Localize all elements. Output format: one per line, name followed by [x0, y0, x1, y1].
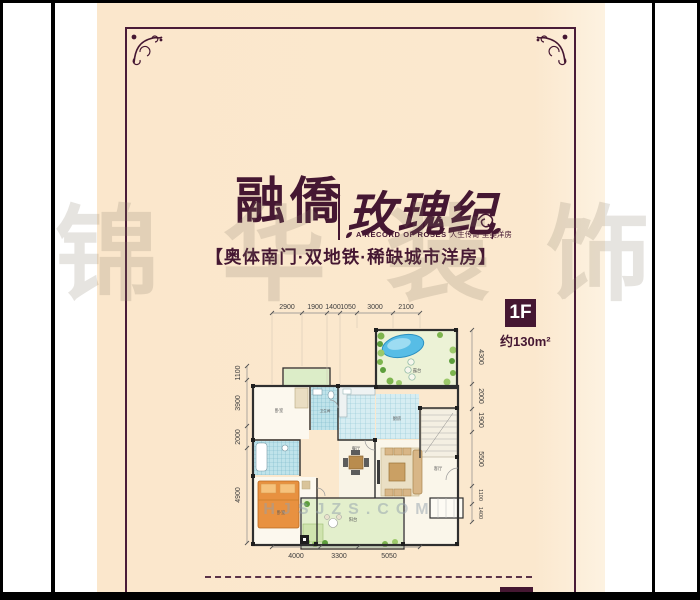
svg-text:厨房: 厨房 — [393, 415, 402, 422]
title-divider — [338, 184, 340, 232]
floor-area: 约130m² — [500, 331, 551, 350]
corner-flourish-icon — [130, 32, 164, 66]
subtitle-en: A RECORD OF ROSES — [356, 230, 447, 239]
svg-text:1900: 1900 — [307, 304, 323, 311]
subtitle-cn: 人生传奇 至美洋房 — [450, 229, 512, 240]
svg-text:2100: 2100 — [398, 304, 414, 311]
svg-text:1900: 1900 — [477, 412, 484, 428]
frame-rule-right — [652, 0, 655, 600]
site-watermark: HJSJZS.COM — [197, 501, 502, 519]
poster-panel: 融僑 玫瑰纪 A RECORD OF ROSES 人生传奇 至美洋房 【奥体南门… — [97, 3, 605, 592]
svg-text:3000: 3000 — [367, 304, 383, 311]
svg-text:2000: 2000 — [477, 388, 484, 404]
title-subline: A RECORD OF ROSES 人生传奇 至美洋房 — [338, 229, 512, 240]
svg-text:1100: 1100 — [235, 365, 242, 380]
svg-text:餐厅: 餐厅 — [352, 445, 361, 452]
frame-edge-left — [0, 0, 3, 600]
svg-text:3300: 3300 — [331, 553, 347, 560]
svg-text:2000: 2000 — [235, 429, 242, 445]
svg-text:1100: 1100 — [477, 489, 483, 501]
svg-text:1400: 1400 — [325, 304, 341, 311]
floor-badge: 1F — [505, 299, 536, 327]
frame-rule-left — [51, 0, 55, 600]
floorplan-drawing: 2900 1900 1400 1050 3000 2100 1100 3900 … — [225, 298, 485, 563]
svg-text:卫生间: 卫生间 — [320, 408, 331, 413]
svg-text:卧室: 卧室 — [275, 407, 284, 414]
frame-edge-top — [0, 0, 700, 3]
svg-text:5050: 5050 — [381, 553, 397, 560]
svg-text:1050: 1050 — [340, 304, 356, 311]
tagline: 【奥体南门·双地铁·稀缺城市洋房】 — [97, 244, 605, 269]
sofa-set — [377, 448, 422, 496]
svg-text:露台: 露台 — [413, 367, 422, 374]
frame-edge-bottom — [0, 592, 700, 600]
poster-page: 融僑 玫瑰纪 A RECORD OF ROSES 人生传奇 至美洋房 【奥体南门… — [0, 0, 700, 600]
svg-text:客厅: 客厅 — [434, 465, 443, 472]
brand-title: 融僑 — [235, 173, 345, 228]
svg-text:4300: 4300 — [477, 349, 484, 365]
wardrobe — [295, 388, 308, 408]
leaf-icon — [345, 231, 353, 239]
svg-text:5500: 5500 — [477, 451, 484, 467]
svg-text:2900: 2900 — [279, 304, 295, 311]
dashed-divider — [205, 576, 532, 578]
svg-text:3900: 3900 — [235, 395, 242, 411]
svg-text:4000: 4000 — [288, 553, 304, 560]
stairs — [421, 409, 457, 457]
corner-flourish-icon — [535, 32, 569, 66]
